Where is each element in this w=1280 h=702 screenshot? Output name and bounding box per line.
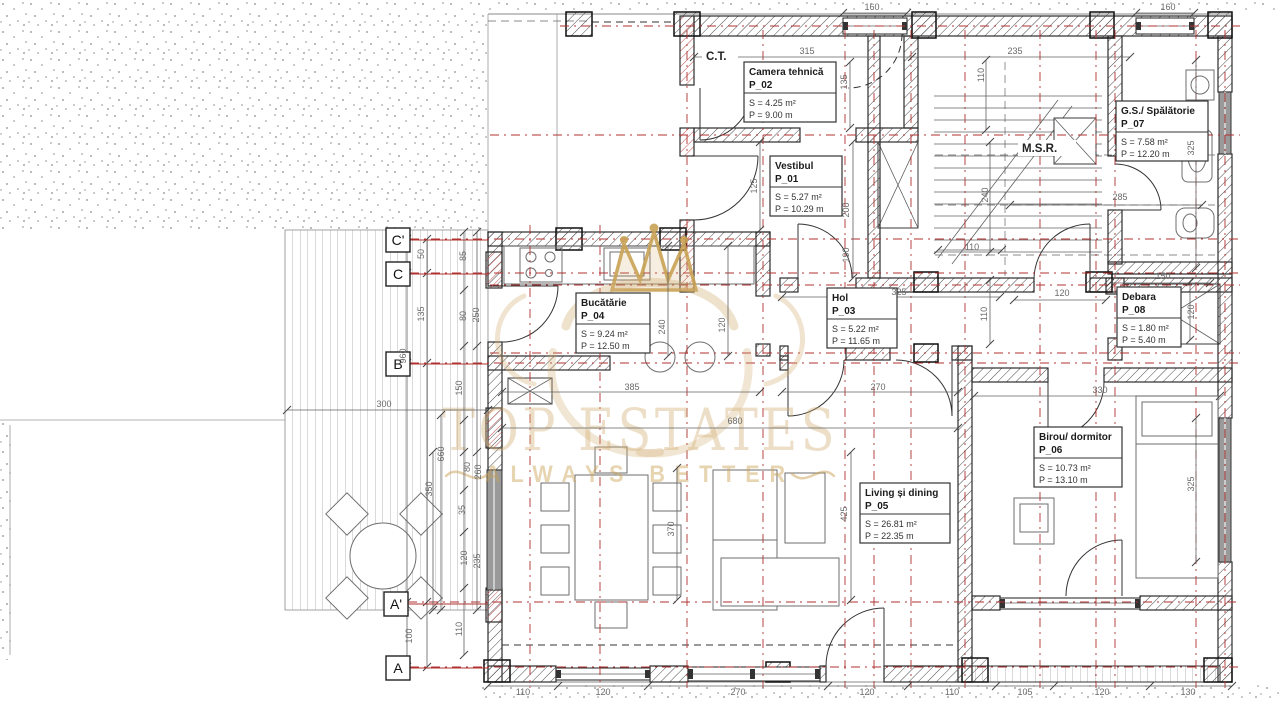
room-code: P_05 bbox=[865, 501, 889, 512]
room-area: S = 5.27 m² bbox=[775, 192, 822, 202]
room-perimeter: P = 13.10 m bbox=[1039, 475, 1088, 485]
window-south-2 bbox=[688, 667, 820, 681]
floor-plan-canvas: TOP ESTATES ALWAYS BETTER C'CBA'A C.T.M.… bbox=[0, 0, 1280, 702]
room-label-birou: Birou/ dormitorP_06S = 10.73 m²P = 13.10… bbox=[1034, 427, 1122, 487]
grid-marker-letter: C bbox=[393, 266, 403, 282]
sofa-group bbox=[713, 470, 839, 610]
room-area: S = 4.25 m² bbox=[749, 98, 796, 108]
room-name: Debara bbox=[1122, 292, 1156, 303]
dimension-label: 240 bbox=[657, 319, 667, 334]
dimension-label: 120 bbox=[859, 687, 874, 697]
room-name: Hol bbox=[832, 293, 848, 304]
dimension-label: 150 bbox=[454, 380, 464, 395]
dimension-label: 110 bbox=[454, 622, 464, 636]
dimension-label: 370 bbox=[666, 521, 676, 536]
dimension-label: 80 bbox=[462, 462, 472, 472]
dimension-label: 960 bbox=[398, 348, 408, 363]
dimension-label: 150 bbox=[1155, 271, 1170, 281]
dimension-label: 270 bbox=[870, 382, 885, 392]
door-living-south bbox=[826, 608, 884, 666]
grid-marker-letter: C' bbox=[392, 232, 405, 248]
dimension-label: 110 bbox=[976, 68, 986, 82]
dimension-label: 325 bbox=[1186, 476, 1196, 491]
room-code: P_03 bbox=[832, 306, 856, 317]
dimension-label: 85 bbox=[458, 251, 468, 261]
dimension-label: 100 bbox=[404, 628, 414, 643]
room-area: S = 9.24 m² bbox=[581, 329, 628, 339]
door-birou-terrace bbox=[1066, 540, 1122, 596]
dimension-label: 120 bbox=[459, 550, 469, 565]
dimension-label: 325 bbox=[891, 287, 906, 297]
dimension-label: 300 bbox=[376, 399, 391, 409]
dimension-label: 50 bbox=[416, 249, 426, 259]
dimension-label: 160 bbox=[864, 2, 879, 12]
dimension-label: 240 bbox=[980, 187, 990, 202]
room-area: S = 1.80 m² bbox=[1122, 323, 1169, 333]
dimension-label: 325 bbox=[1186, 140, 1196, 155]
dimension-label: 285 bbox=[1112, 192, 1127, 202]
zone-label-msr: M.S.R. bbox=[1022, 143, 1057, 155]
dimension-label: 350 bbox=[424, 481, 434, 496]
zone-label-ct: C.T. bbox=[706, 51, 726, 63]
dimension-label: 200 bbox=[841, 202, 851, 217]
grid-marker-a: A bbox=[386, 656, 488, 680]
dimension-label: 680 bbox=[727, 416, 742, 426]
dimension-label: 425 bbox=[839, 506, 849, 521]
door-gs bbox=[1115, 164, 1161, 210]
watermark-subtitle: ALWAYS BETTER bbox=[485, 461, 795, 488]
dimension-label: 260 bbox=[473, 464, 483, 479]
room-area: S = 26.81 m² bbox=[865, 519, 917, 529]
room-name: Living și dining bbox=[865, 488, 938, 499]
dimension-label: 110 bbox=[979, 307, 989, 321]
dimension-label: 235 bbox=[472, 553, 482, 568]
floor-plan-drawing: TOP ESTATES ALWAYS BETTER C'CBA'A C.T.M.… bbox=[0, 0, 1280, 702]
dimension-label: 330 bbox=[1092, 385, 1107, 395]
room-code: P_04 bbox=[581, 311, 605, 322]
dimension-label: 190 bbox=[841, 247, 851, 262]
dimension-label: 385 bbox=[624, 382, 639, 392]
room-perimeter: P = 5.40 m bbox=[1122, 335, 1166, 345]
grid-marker-letter: A bbox=[393, 660, 403, 676]
dimension-label: 125 bbox=[749, 178, 759, 193]
room-name: Bucătărie bbox=[581, 298, 627, 309]
dimension-label: 80 bbox=[458, 311, 468, 321]
room-perimeter: P = 10.29 m bbox=[775, 204, 824, 214]
window-west-living bbox=[487, 470, 502, 590]
room-code: P_07 bbox=[1121, 119, 1145, 130]
room-label-debara: DebaraP_08S = 1.80 m²P = 5.40 m bbox=[1117, 287, 1181, 347]
dimension-label: 120 bbox=[717, 317, 727, 332]
dimension-label: 120 bbox=[1094, 687, 1109, 697]
window-birou-south bbox=[1000, 598, 1140, 609]
room-name: Birou/ dormitor bbox=[1039, 432, 1112, 443]
dimension-label: 105 bbox=[1017, 687, 1032, 697]
room-label-bucatarie: BucătărieP_04S = 9.24 m²P = 12.50 m bbox=[576, 293, 650, 353]
toilet bbox=[1176, 208, 1214, 238]
door-hol-stairs bbox=[1034, 224, 1090, 278]
room-name: G.S./ Spălătorie bbox=[1121, 106, 1195, 117]
window-south-1 bbox=[556, 668, 650, 680]
dimension-label: 35 bbox=[457, 505, 467, 515]
dimension-label: 120 bbox=[595, 687, 610, 697]
room-area: S = 10.73 m² bbox=[1039, 463, 1091, 473]
room-code: P_02 bbox=[749, 80, 773, 91]
window-north-2 bbox=[1136, 18, 1194, 34]
room-perimeter: P = 9.00 m bbox=[749, 110, 793, 120]
room-area: S = 5.22 m² bbox=[832, 324, 879, 334]
room-code: P_01 bbox=[775, 174, 799, 185]
room-label-hol: HolP_03S = 5.22 m²P = 11.65 m bbox=[827, 288, 897, 348]
dimension-label: 110 bbox=[516, 687, 530, 697]
room-code: P_06 bbox=[1039, 445, 1063, 456]
dimension-label: 660 bbox=[436, 446, 446, 461]
room-label-living: Living și diningP_05S = 26.81 m²P = 22.3… bbox=[860, 483, 950, 543]
room-perimeter: P = 12.20 m bbox=[1121, 149, 1170, 159]
room-label-vestibul: VestibulP_01S = 5.27 m²P = 10.29 m bbox=[770, 156, 842, 216]
washing-machine bbox=[1186, 70, 1214, 100]
room-name: Vestibul bbox=[775, 161, 814, 172]
bed bbox=[1136, 396, 1218, 578]
room-perimeter: P = 11.65 m bbox=[832, 336, 880, 346]
room-code: P_08 bbox=[1122, 305, 1146, 316]
dimension-label: 315 bbox=[799, 46, 814, 56]
watermark-title: TOP ESTATES bbox=[442, 396, 838, 464]
dimension-label: 270 bbox=[730, 687, 745, 697]
room-perimeter: P = 12.50 m bbox=[581, 341, 630, 351]
dimension-label: 135 bbox=[839, 74, 849, 89]
dimension-label: 110 bbox=[965, 242, 979, 252]
dimension-label: 250 bbox=[471, 307, 481, 322]
armchair bbox=[1014, 498, 1054, 544]
dimension-label: 235 bbox=[1007, 46, 1022, 56]
grid-marker-letter: A' bbox=[390, 596, 402, 612]
door-hol-living-2 bbox=[896, 360, 952, 416]
dimension-label: 130 bbox=[1180, 687, 1195, 697]
room-label-camera-tehnica: Camera tehnicăP_02S = 4.25 m²P = 9.00 m bbox=[744, 62, 836, 122]
dimension-label: 135 bbox=[416, 306, 426, 321]
room-area: S = 7.58 m² bbox=[1121, 137, 1168, 147]
room-name: Camera tehnică bbox=[749, 67, 824, 78]
dimension-label: 110 bbox=[945, 687, 959, 697]
room-perimeter: P = 22.35 m bbox=[865, 531, 914, 541]
dimension-label: 160 bbox=[1160, 2, 1175, 12]
dimension-label: 120 bbox=[1186, 304, 1196, 319]
dimension-label: 120 bbox=[1054, 288, 1069, 298]
